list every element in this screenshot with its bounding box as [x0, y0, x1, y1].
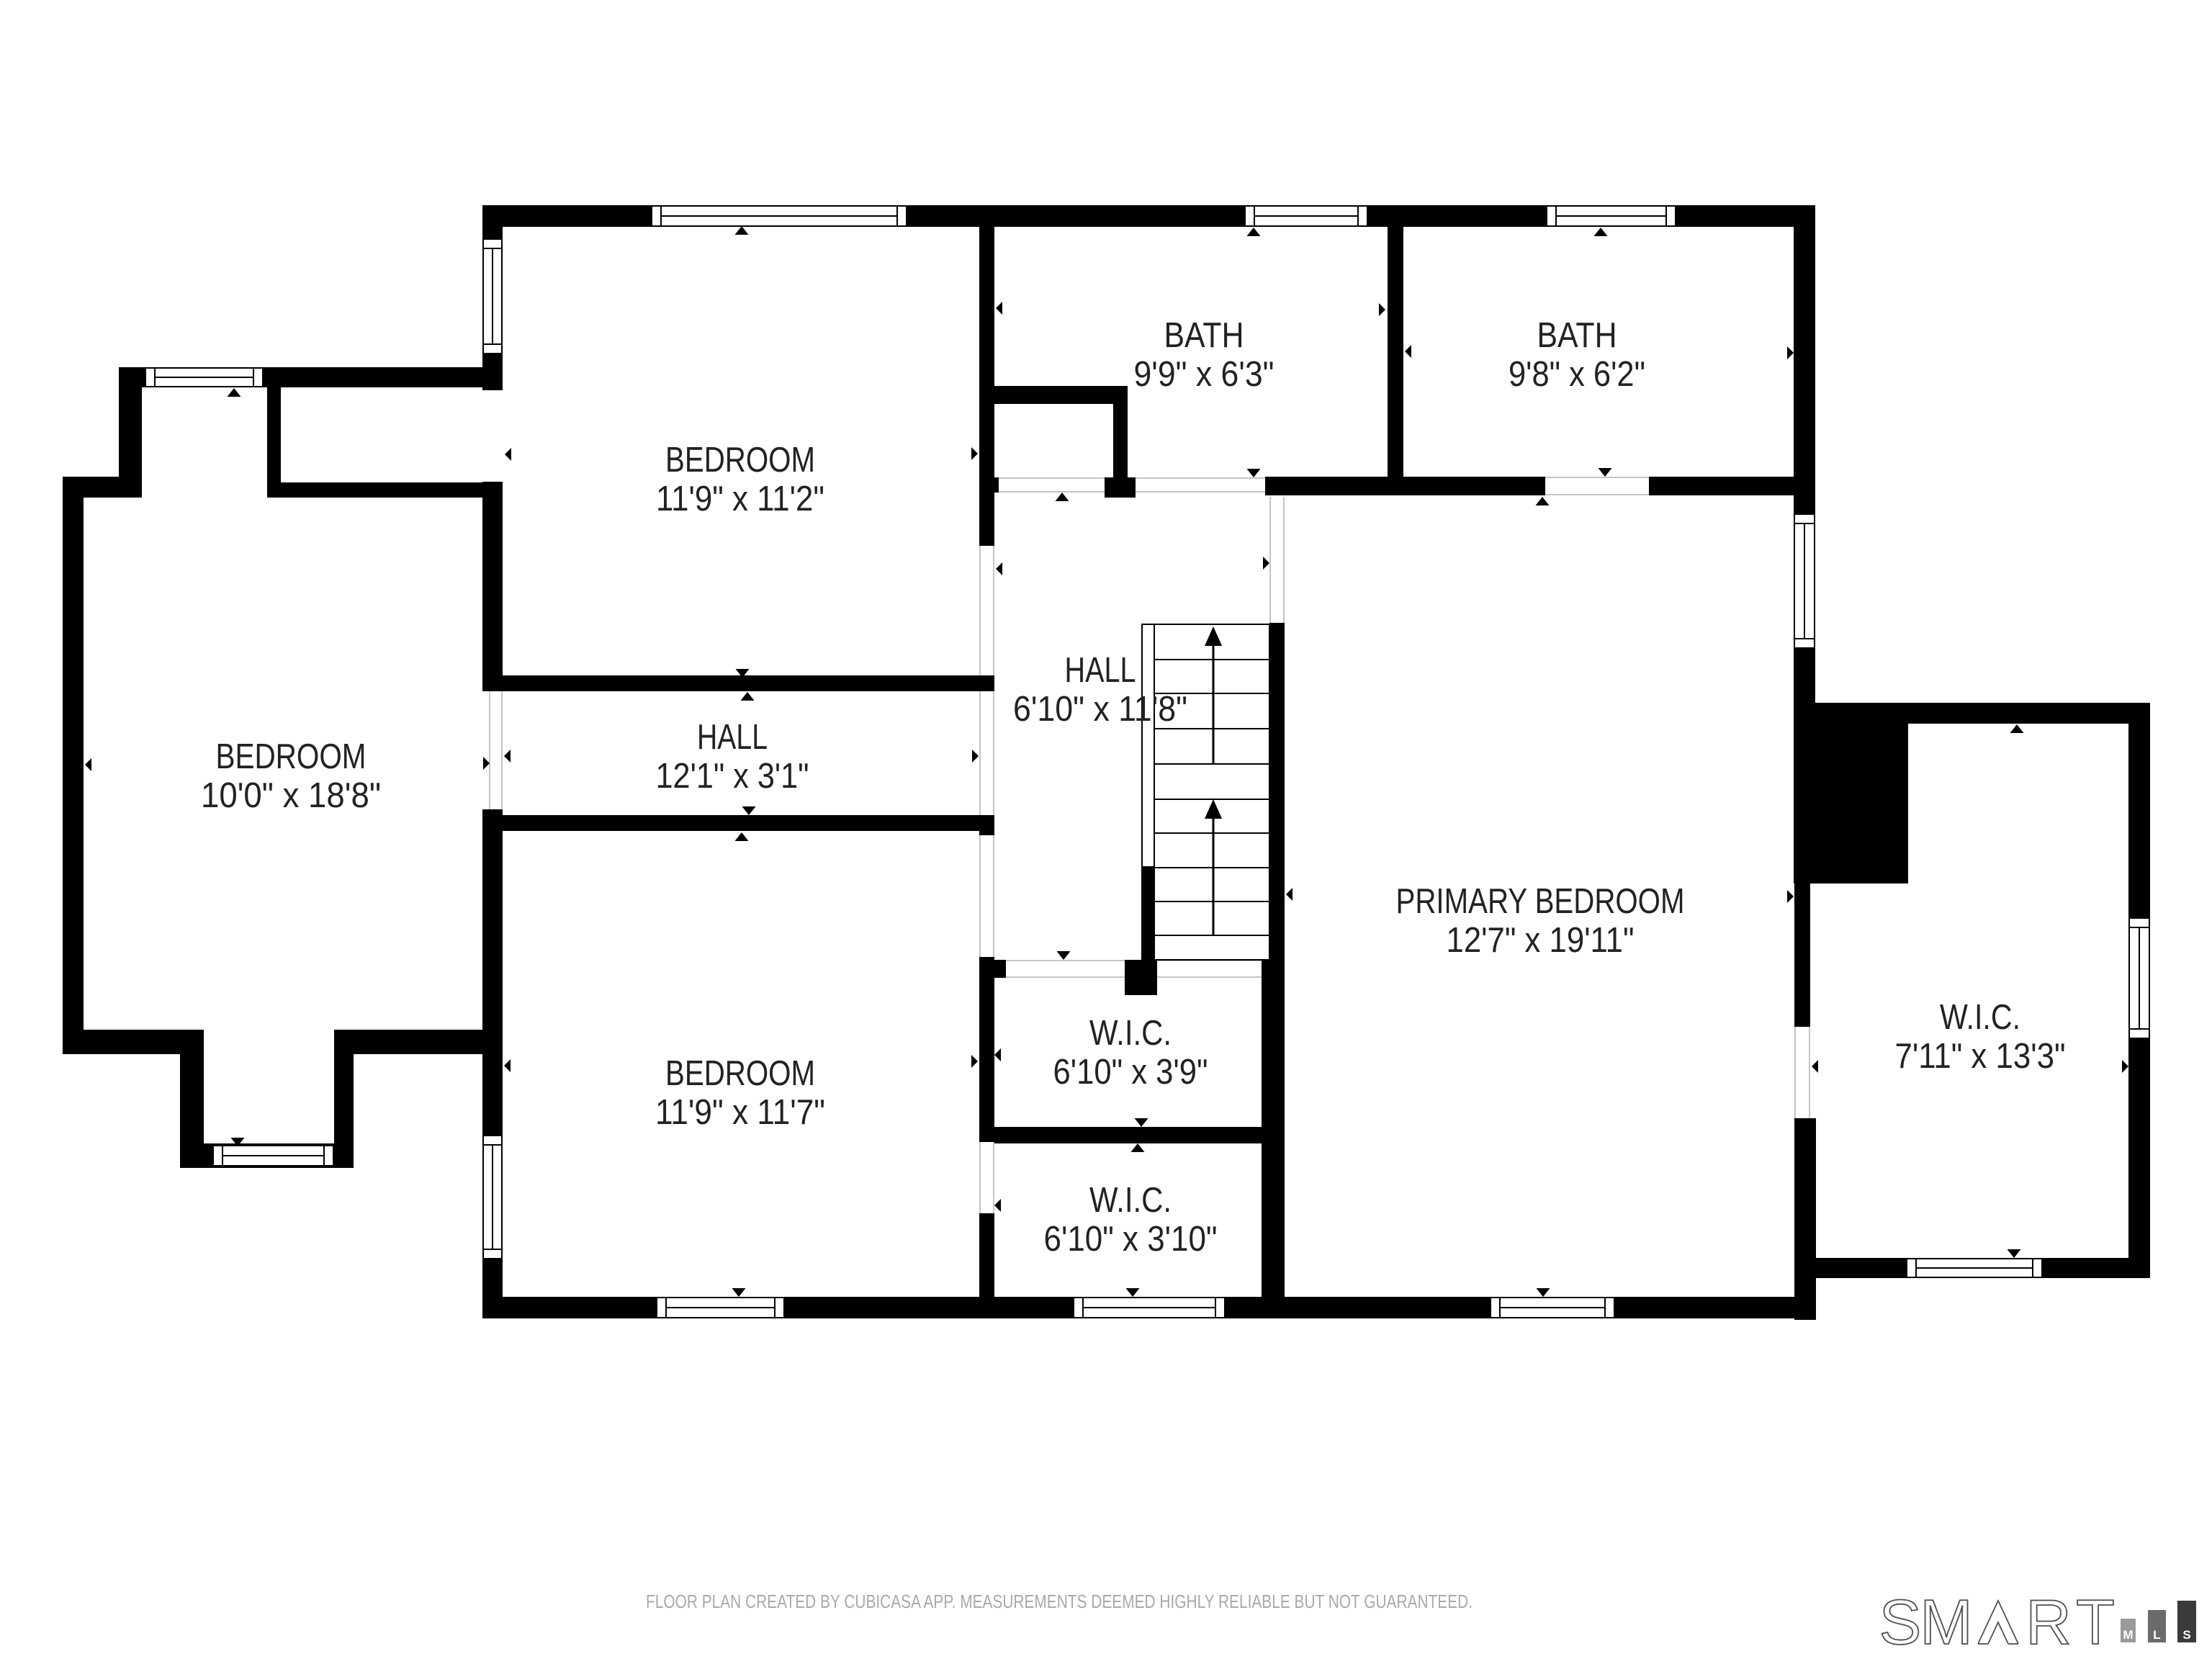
svg-text:BEDROOM: BEDROOM [216, 737, 367, 776]
svg-text:FLOOR PLAN CREATED BY CUBICASA: FLOOR PLAN CREATED BY CUBICASA APP. MEAS… [646, 1591, 1473, 1612]
svg-text:10'0" x 18'8": 10'0" x 18'8" [201, 776, 381, 815]
svg-text:7'11" x 13'3": 7'11" x 13'3" [1895, 1037, 2066, 1076]
svg-text:HALL: HALL [1065, 651, 1136, 690]
svg-text:T: T [2076, 1586, 2115, 1658]
svg-text:12'7" x 19'11": 12'7" x 19'11" [1447, 921, 1635, 960]
svg-text:BATH: BATH [1164, 316, 1244, 355]
svg-text:9'9" x 6'3": 9'9" x 6'3" [1134, 355, 1274, 394]
svg-text:6'10" x 3'10": 6'10" x 3'10" [1044, 1220, 1218, 1259]
svg-text:W.I.C.: W.I.C. [1089, 1014, 1172, 1053]
svg-text:6'10" x 11'8": 6'10" x 11'8" [1013, 690, 1187, 729]
svg-text:6'10" x 3'9": 6'10" x 3'9" [1053, 1053, 1208, 1092]
svg-text:L: L [2153, 1628, 2160, 1642]
svg-text:9'8" x 6'2": 9'8" x 6'2" [1509, 355, 1645, 394]
svg-text:HALL: HALL [697, 718, 768, 757]
svg-text:W.I.C.: W.I.C. [1089, 1181, 1172, 1220]
svg-text:M: M [2123, 1628, 2133, 1642]
svg-text:PRIMARY BEDROOM: PRIMARY BEDROOM [1396, 882, 1685, 921]
svg-text:R: R [2026, 1586, 2072, 1658]
svg-text:W.I.C.: W.I.C. [1940, 998, 2020, 1037]
svg-text:BATH: BATH [1537, 316, 1617, 355]
svg-text:S: S [1879, 1586, 1922, 1658]
svg-text:11'9" x 11'7": 11'9" x 11'7" [655, 1093, 825, 1132]
svg-text:BEDROOM: BEDROOM [665, 441, 815, 480]
svg-text:BEDROOM: BEDROOM [665, 1054, 815, 1093]
svg-text:12'1" x 3'1": 12'1" x 3'1" [656, 757, 809, 796]
svg-text:11'9" x 11'2": 11'9" x 11'2" [656, 480, 824, 518]
svg-text:M: M [1920, 1586, 1972, 1658]
svg-text:S: S [2182, 1628, 2190, 1642]
